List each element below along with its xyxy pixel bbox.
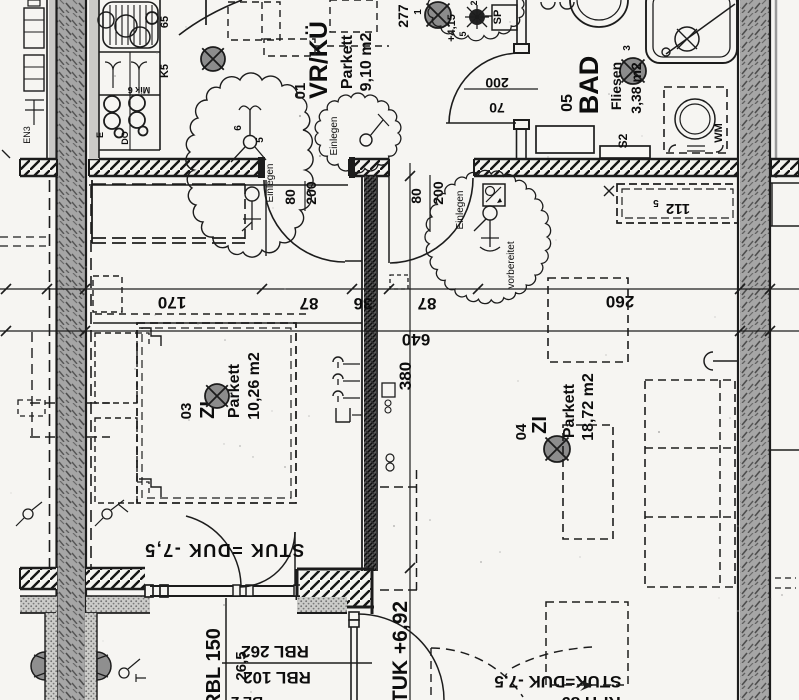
svg-text:04: 04 [513,423,530,440]
svg-text:Parkett: Parkett [339,34,356,89]
svg-text:80: 80 [282,189,298,205]
svg-text:70: 70 [489,100,505,116]
svg-text:RBL 102: RBL 102 [243,668,311,687]
svg-text:6: 6 [233,125,244,131]
svg-text:65: 65 [159,16,171,28]
svg-text:STUK =DUK -7,5: STUK =DUK -7,5 [144,540,305,560]
svg-text:EN3: EN3 [22,126,32,144]
svg-text:260: 260 [606,292,634,311]
svg-text:1: 1 [413,9,424,15]
svg-text:277: 277 [395,4,411,28]
svg-text:Einlegen: Einlegen [265,164,276,203]
svg-text:170: 170 [158,293,186,312]
svg-text:3: 3 [622,45,633,51]
svg-text:VR/KÜ: VR/KÜ [304,21,333,99]
svg-text:WM: WM [713,123,725,143]
svg-text:RPH 89: RPH 89 [561,693,621,700]
svg-text:80: 80 [408,188,424,204]
svg-text:10,26 m2: 10,26 m2 [246,352,263,420]
svg-text:S2: S2 [616,133,630,148]
svg-text:E: E [95,132,105,138]
svg-text:26,5: 26,5 [233,651,250,680]
svg-text:03: 03 [178,403,195,420]
svg-text:ZI: ZI [529,416,551,434]
svg-text:18,72 m2: 18,72 m2 [580,373,597,441]
svg-text:380: 380 [396,362,415,390]
svg-text:9,10 m2: 9,10 m2 [358,33,375,92]
svg-text:K5: K5 [159,64,171,78]
svg-text:RBL 262: RBL 262 [241,642,309,661]
svg-text:vorbereitet: vorbereitet [506,241,517,288]
svg-text:Fliesen: Fliesen [608,62,624,110]
svg-text:5: 5 [255,137,266,143]
svg-text:SP: SP [492,10,504,25]
svg-text:TUK +6,92: TUK +6,92 [389,601,412,700]
svg-text:STUK=DUK -7,5: STUK=DUK -7,5 [494,672,621,691]
svg-text:640: 640 [402,330,430,349]
svg-text:2: 2 [469,0,479,5]
svg-text:Einlegen: Einlegen [455,191,466,230]
svg-text:3,38 m2: 3,38 m2 [628,62,644,114]
svg-text:5: 5 [653,197,659,208]
svg-text:87: 87 [300,294,319,313]
svg-text:BL 2: BL 2 [231,693,263,700]
svg-text:DO: DO [120,131,130,145]
svg-text:Einlegen: Einlegen [329,117,340,156]
svg-text:112: 112 [666,200,690,217]
svg-text:36: 36 [354,294,373,313]
svg-text:Parkett: Parkett [561,383,578,438]
svg-text:5: 5 [458,31,468,36]
svg-text:BAD: BAD [574,56,604,115]
svg-text:87: 87 [418,294,437,313]
svg-text:RBL 150: RBL 150 [203,628,225,700]
